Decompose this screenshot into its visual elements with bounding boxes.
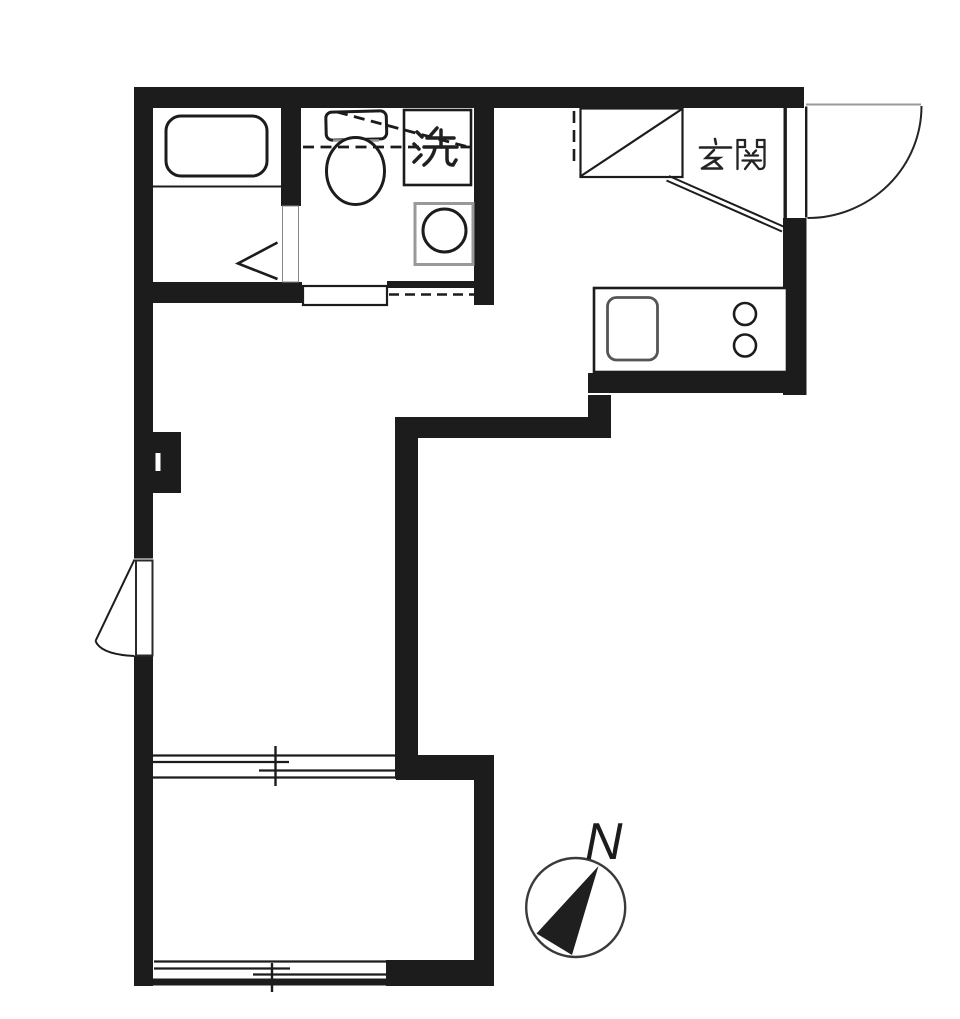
svg-text:N: N — [585, 813, 623, 871]
